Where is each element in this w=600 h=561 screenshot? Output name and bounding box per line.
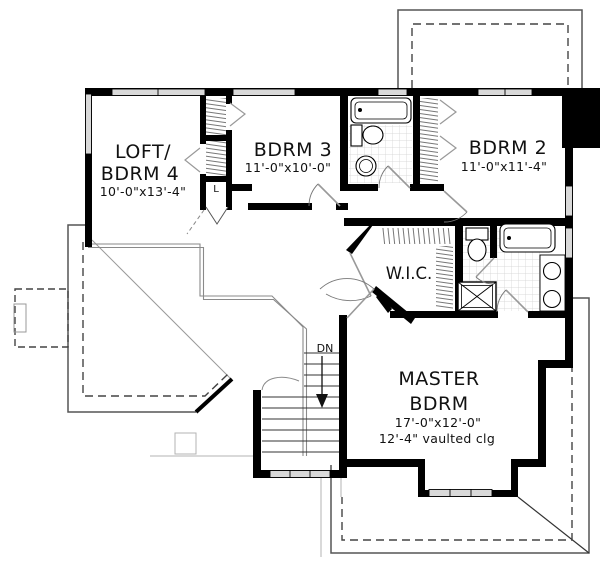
staircase	[262, 353, 339, 452]
bdrm2-label: BDRM 2	[469, 137, 547, 159]
door-leaf-master	[347, 289, 374, 318]
wall-bath-bottom	[340, 184, 378, 191]
loft-label-line2: BDRM 4	[101, 163, 179, 185]
shower	[458, 282, 496, 311]
floor-plan-drawing: LOFT/ BDRM 4 10'-0"x13'-4" BDRM 3 11'-0"…	[0, 0, 600, 561]
wall-bath-right	[413, 96, 420, 191]
linen-door	[206, 207, 228, 224]
linen-closet-label: L	[213, 184, 219, 195]
wall-bath-left	[340, 96, 348, 191]
stairs-down-label: DN	[317, 342, 334, 355]
bdrm3-label: BDRM 3	[254, 139, 332, 161]
loft-label-line1: LOFT/	[115, 141, 171, 163]
master-ceiling-note: 12'-4" vaulted clg	[379, 431, 495, 446]
wall-master-angled	[372, 286, 415, 324]
wall-master-bottom-left	[339, 459, 425, 467]
window-bath-top	[378, 89, 407, 96]
door-leaf-wic	[350, 253, 371, 296]
window-master-bay	[429, 490, 492, 497]
roof-outline-top-right	[398, 10, 582, 90]
toilet-bowl	[363, 126, 383, 144]
sink	[544, 291, 561, 308]
closet-door-chevron	[440, 136, 456, 160]
window-loft-top	[112, 89, 205, 96]
handrail-curve	[262, 377, 299, 390]
sink	[544, 263, 561, 280]
loft-dims: 10'-0"x13'-4"	[100, 184, 186, 199]
closet-door-chevron	[230, 103, 245, 126]
toilet-tank	[466, 228, 488, 240]
wall-master-right-lower	[538, 360, 546, 466]
bdrm2-dims: 11'-0"x11'-4"	[461, 159, 547, 174]
chimney-ghost-box	[175, 433, 196, 454]
wall-stairwell-left	[253, 390, 261, 478]
window-loft-left	[86, 94, 92, 154]
toilet-bowl	[468, 239, 486, 261]
master-label-line1: MASTER	[398, 368, 479, 390]
window-bdrm2-right	[566, 186, 573, 216]
master-label-line2: BDRM	[409, 393, 468, 415]
closet-door-chevron	[185, 148, 200, 172]
bdrm3-dims: 11'-0"x10'-0"	[245, 160, 331, 175]
window-stairwell	[270, 471, 330, 478]
wall-bdrm3-bottom	[248, 203, 312, 210]
closet-door-chevron	[440, 100, 456, 124]
wall-master-right-upper	[565, 311, 573, 366]
wall-top-right-block	[562, 88, 600, 148]
window-bdrm3-top	[233, 89, 295, 96]
window-master-bath-right	[566, 228, 573, 258]
chimney-dashed-outline	[15, 289, 68, 347]
railing	[88, 244, 307, 456]
door-leaf-bdrm3	[318, 184, 340, 206]
wall-toilet-nook	[490, 218, 497, 258]
floor-plan-page: LOFT/ BDRM 4 10'-0"x13'-4" BDRM 3 11'-0"…	[0, 0, 600, 561]
wic-label: W.I.C.	[386, 264, 433, 283]
door-leaf-bdrm2	[444, 191, 467, 212]
master-dims: 17'-0"x12'-0"	[395, 415, 481, 430]
toilet-tank	[351, 125, 362, 146]
roof-outline-bottom-left	[14, 225, 232, 412]
wall-stairwell-right	[339, 315, 347, 478]
